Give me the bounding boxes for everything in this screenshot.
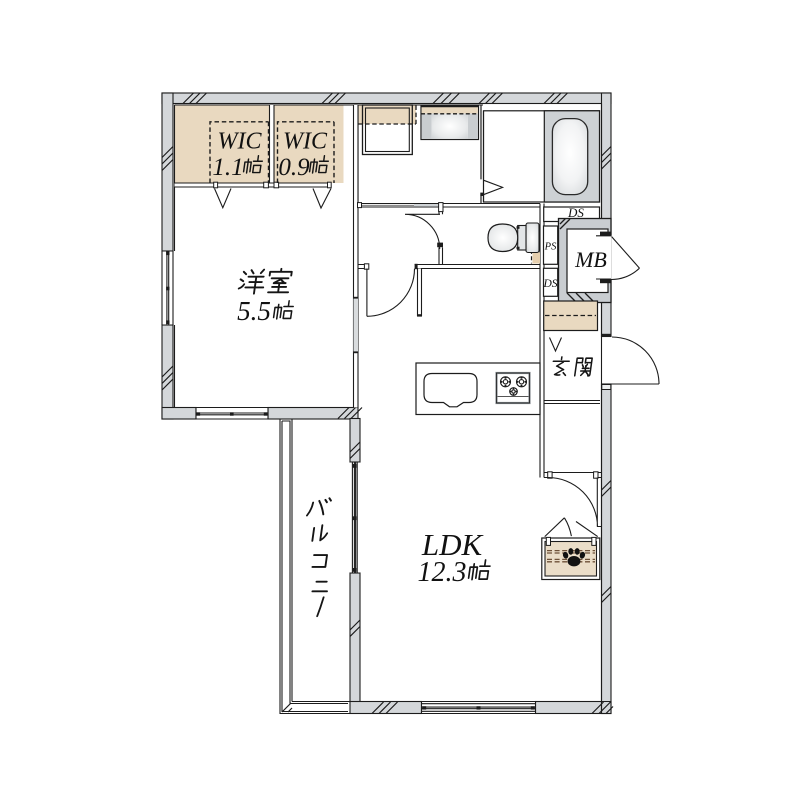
svg-text:WIC: WIC [218,129,263,155]
svg-text:5.5: 5.5 [237,296,271,326]
svg-text:1.1: 1.1 [212,154,243,181]
svg-text:DS: DS [542,278,557,290]
svg-text:PS: PS [544,242,557,253]
svg-text:MB: MB [574,247,607,272]
svg-text:0.9: 0.9 [278,154,310,181]
svg-text:12.3: 12.3 [418,557,467,588]
svg-text:DS: DS [567,205,584,220]
svg-text:WIC: WIC [283,129,328,155]
